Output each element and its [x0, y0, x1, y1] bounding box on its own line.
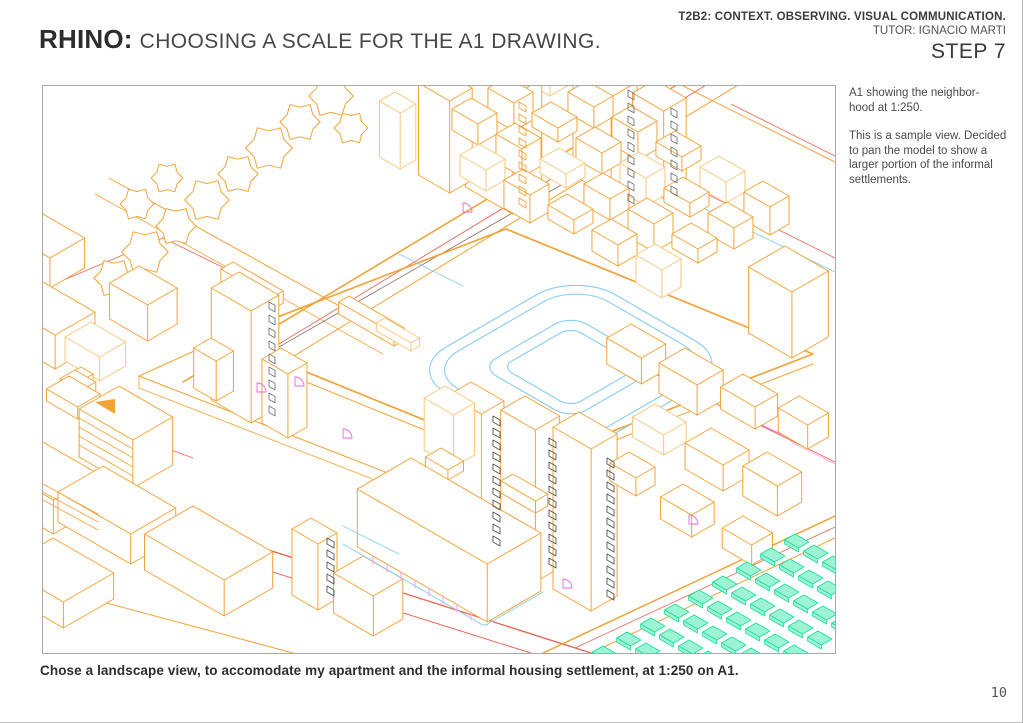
rhino-viewport-drawing	[43, 86, 835, 653]
tutor-name: TUTOR: IGNACIO MARTI	[678, 25, 1006, 37]
side-note-paragraph-2: This is a sample view. Decided to pan th…	[849, 129, 1009, 187]
page-title-app: RHINO:	[39, 24, 133, 54]
page-title-text: CHOOSING A SCALE FOR THE A1 DRAWING.	[140, 30, 601, 53]
header-meta: T2B2: CONTEXT. OBSERVING. VISUAL COMMUNI…	[678, 11, 1006, 64]
page-number: 10	[991, 685, 1007, 701]
step-label: STEP 7	[678, 40, 1006, 64]
side-note-paragraph-1: A1 showing the neighbor- hood at 1:250.	[849, 86, 1009, 115]
page-title: RHINO:CHOOSING A SCALE FOR THE A1 DRAWIN…	[39, 24, 601, 55]
drawing-frame	[42, 85, 836, 654]
slide-page: RHINO:CHOOSING A SCALE FOR THE A1 DRAWIN…	[0, 0, 1023, 723]
figure-caption: Chose a landscape view, to accomodate my…	[40, 663, 739, 678]
course-title: T2B2: CONTEXT. OBSERVING. VISUAL COMMUNI…	[678, 11, 1006, 23]
side-note: A1 showing the neighbor- hood at 1:250. …	[849, 86, 1009, 201]
